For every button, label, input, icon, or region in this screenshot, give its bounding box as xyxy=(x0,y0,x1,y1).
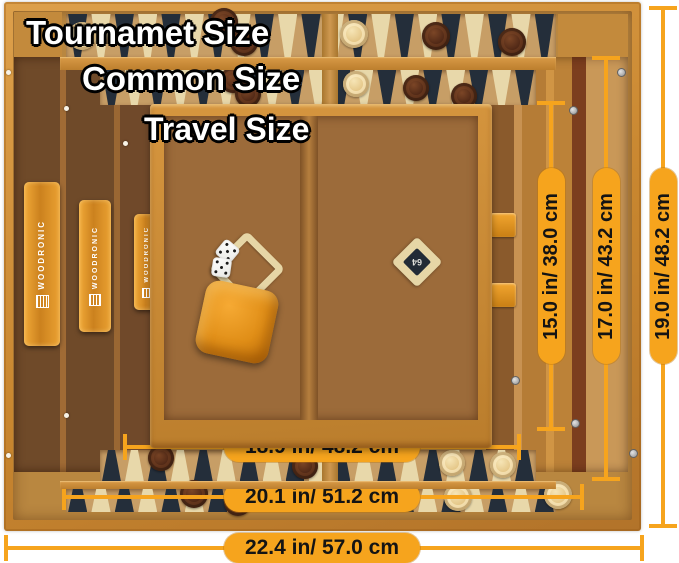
size-label-common: Common Size xyxy=(82,62,300,95)
dimension-text: 19.0 in/ 48.2 cm xyxy=(652,193,675,340)
top-right-corner-block xyxy=(558,14,628,57)
dimension-cap xyxy=(640,535,644,561)
dimension-text: 22.4 in/ 57.0 cm xyxy=(245,536,399,560)
doubling-cube xyxy=(193,278,281,366)
inlay-64-face: 64 xyxy=(403,248,431,276)
dimension-line-vertical xyxy=(661,6,665,528)
dimension-cap xyxy=(649,524,677,528)
common-board-bottom-rail xyxy=(60,481,556,489)
dimension-cap xyxy=(649,6,677,10)
travel-board-center-bar xyxy=(300,116,318,420)
dimension-label-horizontal: 22.4 in/ 57.0 cm xyxy=(224,533,420,563)
size-label-tournament: Tournamet Size xyxy=(26,16,269,49)
die-2 xyxy=(211,257,232,278)
inlay-64-value: 64 xyxy=(412,257,422,267)
size-label-travel: Travel Size xyxy=(144,113,309,145)
product-screenshot: 64 WOODRONICWOODRONICWOODRONIC15.0 in/ 3… xyxy=(0,0,679,563)
dimension-line-horizontal xyxy=(4,546,644,550)
right-wood-panel xyxy=(486,57,628,472)
dimension-cap xyxy=(4,535,8,561)
left-wood-panel xyxy=(14,57,162,472)
dimension-label-vertical: 19.0 in/ 48.2 cm xyxy=(650,168,677,364)
